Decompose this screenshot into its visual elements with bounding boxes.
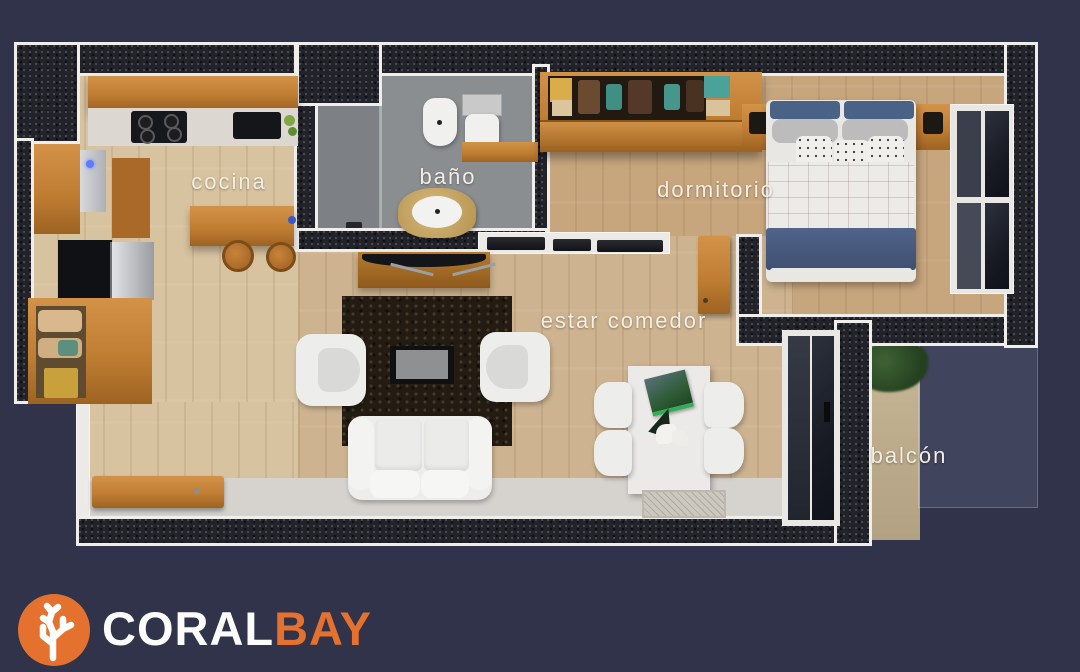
doormat [642, 490, 726, 518]
balcony-glass-railing [918, 344, 1038, 508]
kitchen-sink [233, 112, 281, 139]
burner-icon [167, 127, 182, 142]
logo-text-coral: CORAL [102, 602, 274, 655]
wall-bottom [76, 516, 872, 546]
room-label-dormitorio: dormitorio [657, 177, 775, 203]
sink-drain [435, 209, 440, 214]
hanging-clothes [606, 84, 622, 110]
stool [222, 240, 254, 272]
window-pane [985, 111, 1009, 197]
sofa-back-cushion [421, 470, 469, 498]
bed [766, 100, 916, 282]
armchair [480, 332, 550, 402]
sink-basin [412, 196, 462, 228]
coral-icon [18, 594, 90, 666]
wardrobe [540, 72, 762, 152]
hanging-clothes [686, 80, 704, 112]
sofa-seat-cushion [424, 419, 469, 471]
bedroom-window [950, 104, 1014, 294]
coralbay-wordmark: CORALBAY [102, 601, 372, 656]
toilet-tank [462, 94, 502, 116]
kitchen-lower-unit [28, 298, 152, 404]
counter-top-segment [597, 240, 663, 252]
folded-clothes [550, 78, 572, 102]
coffee-table-top [396, 350, 448, 379]
glass-door-pane [788, 336, 810, 520]
bed-foot [770, 268, 912, 280]
sliding-glass-door-frame [782, 330, 840, 526]
duvet [768, 162, 914, 230]
room-label-estar-comedor: estar comedor [541, 308, 708, 334]
wall-top [14, 42, 1036, 76]
armchair [296, 334, 366, 406]
flower [672, 430, 688, 446]
kitchen-plant [288, 127, 297, 136]
folded-clothes [552, 100, 572, 116]
floor-plan-canvas: cocina baño dormitorio estar comedor bal… [0, 0, 1080, 672]
bidet [423, 98, 457, 146]
hanging-clothes [578, 80, 600, 114]
sofa-back-cushion [370, 470, 420, 498]
fridge [58, 240, 112, 298]
stool [266, 242, 296, 272]
folded-clothes [706, 100, 730, 116]
kitchen-cabinet-left [34, 144, 80, 234]
kitchen-plant [284, 115, 295, 126]
door-handle-icon [824, 402, 830, 422]
wall-left-step [76, 398, 90, 522]
sofa-armrest [466, 418, 492, 490]
burner-icon [138, 115, 153, 130]
storage-box [44, 368, 78, 398]
towel [58, 340, 78, 356]
cooktop [131, 111, 187, 143]
towel [38, 310, 82, 332]
kitchen-upper-cabinet [88, 76, 298, 110]
storage-box [704, 76, 730, 98]
bed-blanket [766, 228, 916, 270]
dispenser-light [86, 160, 94, 168]
headboard-bolster [770, 101, 840, 119]
counter-top-segment [487, 237, 545, 250]
island-faucet [288, 216, 296, 224]
counter-top-segment [553, 239, 591, 251]
window-pane [957, 203, 981, 289]
coffee-table [390, 346, 454, 384]
nightstand [914, 104, 952, 150]
door-knob-icon [194, 488, 200, 494]
hanging-clothes [664, 84, 680, 110]
door-knob-icon [703, 298, 708, 303]
burner-icon [140, 129, 155, 144]
bathroom-shelf [462, 142, 538, 162]
wall-corner-top-left [14, 42, 80, 144]
window-pane [957, 111, 981, 197]
logo-text-bay: BAY [274, 602, 372, 655]
hanging-clothes [628, 80, 652, 114]
armchair-seat [486, 345, 528, 389]
dining-chair [594, 430, 632, 476]
dining-chair [704, 382, 744, 428]
headboard-bolster [844, 101, 914, 119]
shower-area [316, 100, 380, 234]
armchair-seat [318, 348, 360, 392]
sofa-seat-cushion [375, 419, 422, 471]
entry-door-open [92, 476, 224, 508]
bidet-drain [437, 120, 442, 125]
room-label-balcon: balcón [871, 443, 948, 469]
floor-cocina-lower [76, 402, 298, 482]
fridge-door [110, 242, 154, 300]
wall-bath-top-step [296, 42, 382, 106]
wardrobe-shelf [540, 120, 762, 146]
half-wall-counter [478, 232, 670, 254]
room-label-cocina: cocina [191, 169, 267, 195]
lamp-icon [923, 112, 943, 134]
room-label-bano: baño [420, 164, 477, 190]
sofa [348, 416, 492, 500]
dining-chair [704, 428, 744, 474]
glass-door-pane [812, 336, 834, 520]
coral-branch-glyph [18, 594, 90, 666]
shower-glass-panel [379, 104, 382, 234]
bedroom-door-open [698, 236, 730, 314]
dining-chair [594, 382, 632, 428]
water-dispenser [80, 150, 106, 212]
window-pane [985, 203, 1009, 289]
kitchen-cabinet-mid [112, 158, 150, 238]
